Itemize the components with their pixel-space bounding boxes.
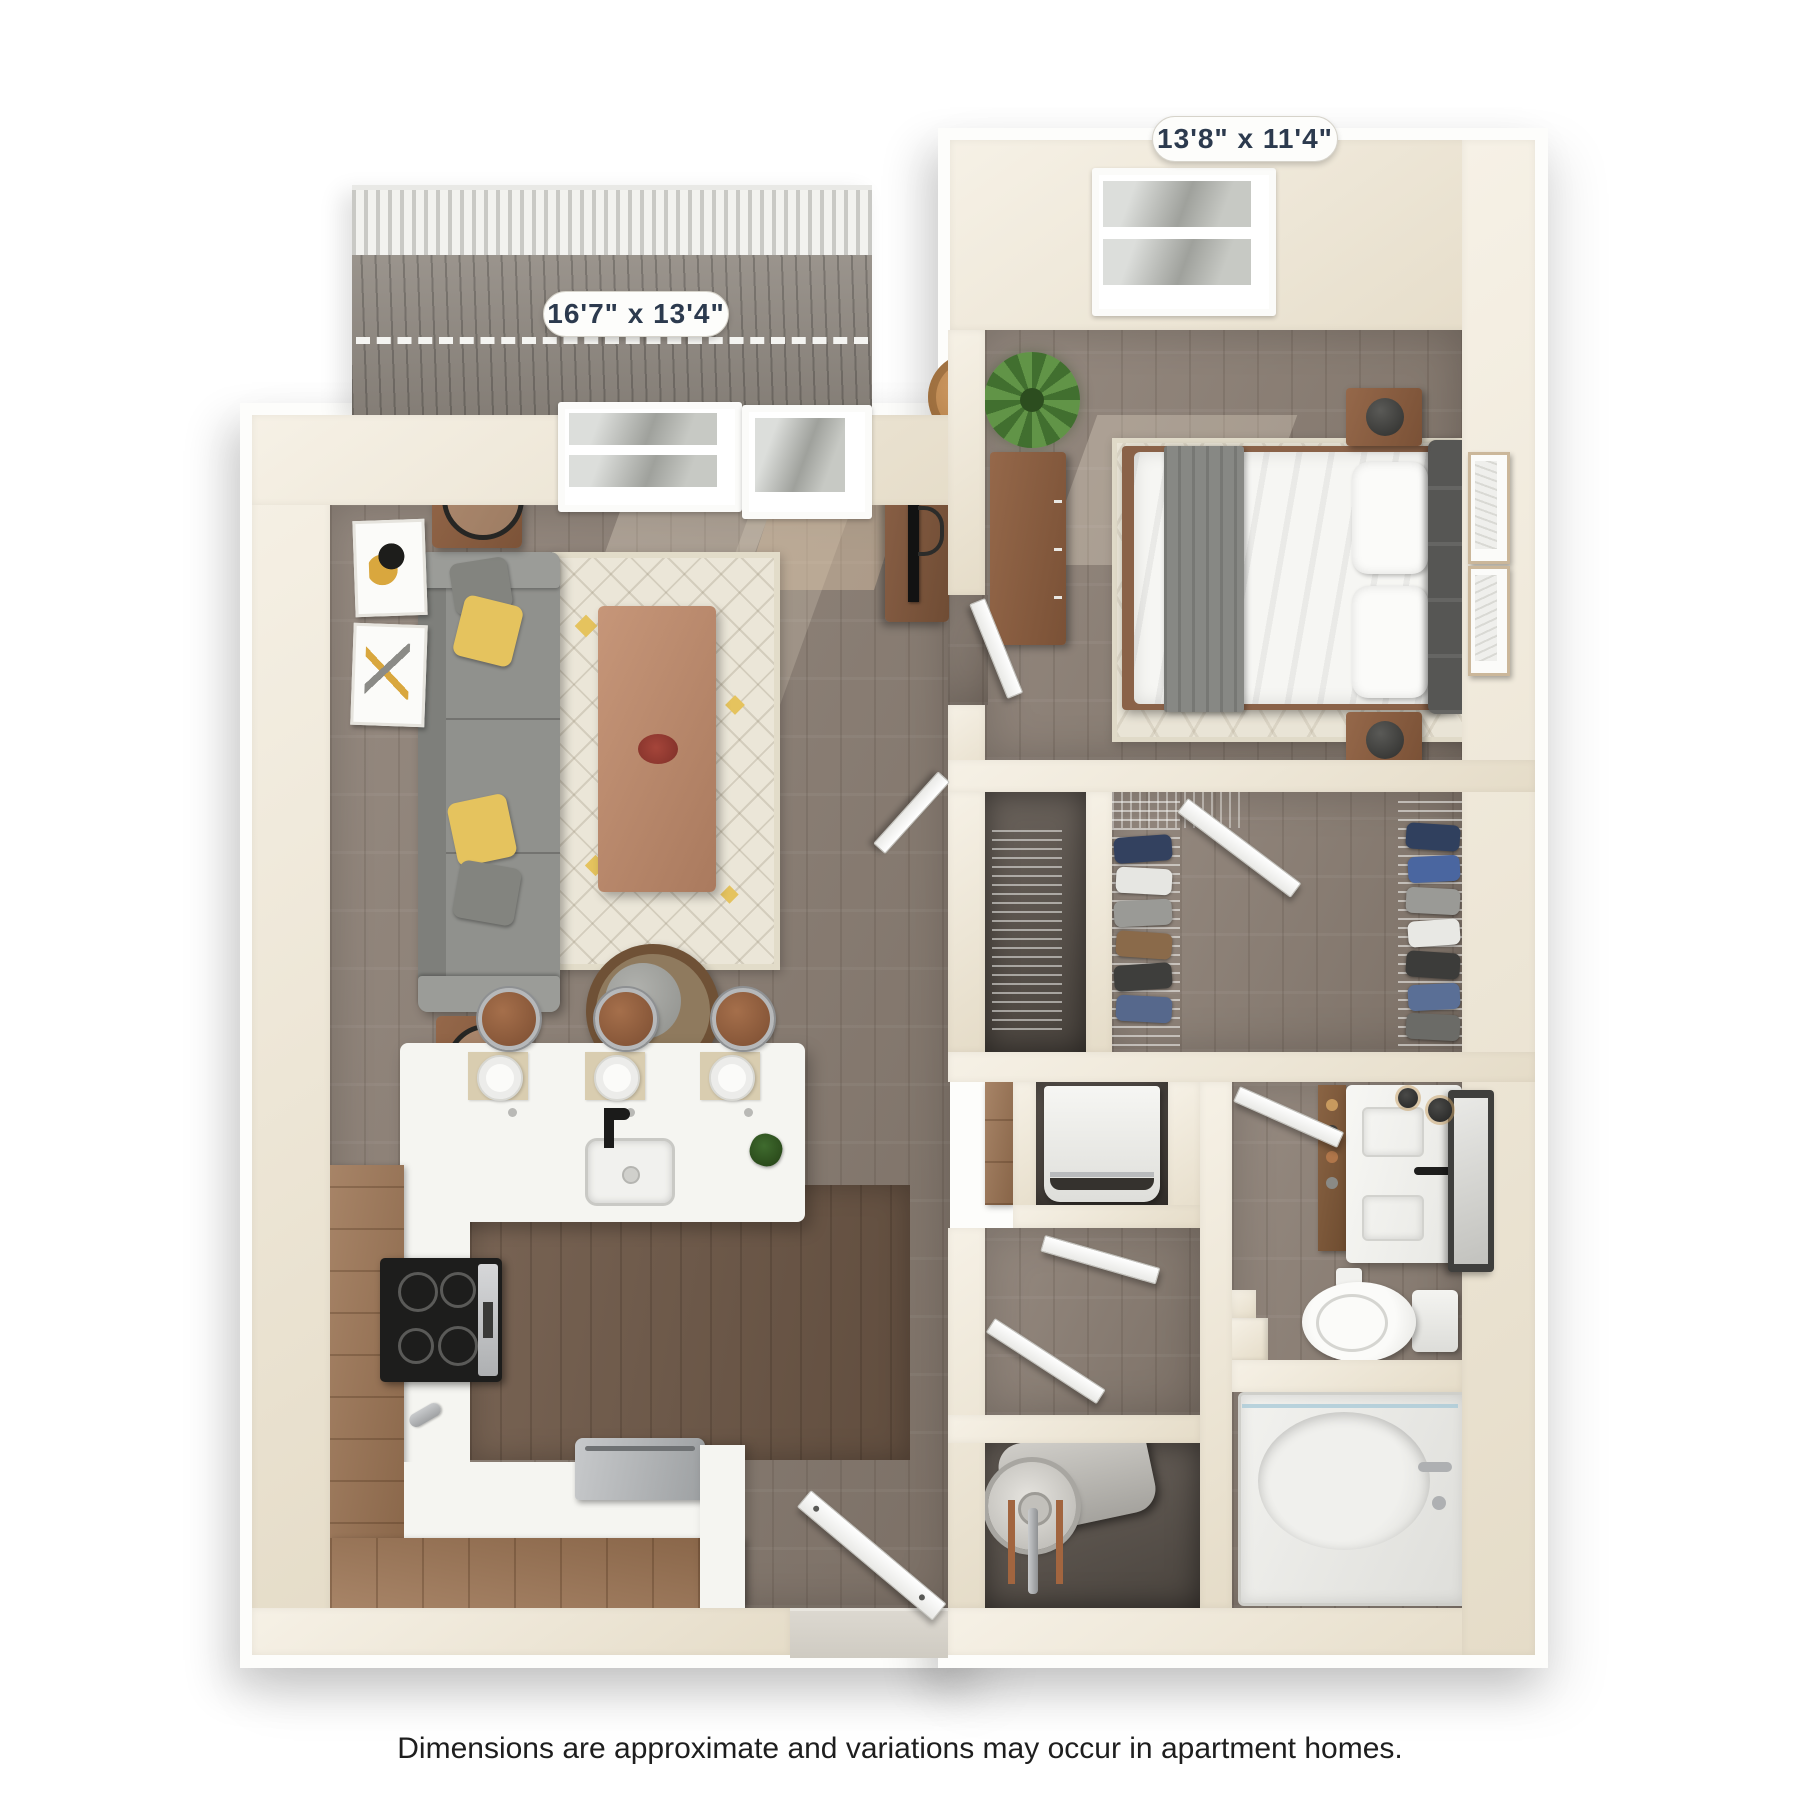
bedroom-window <box>1092 168 1276 316</box>
wall-laundry-lip <box>1013 1205 1200 1228</box>
kitchen-sink <box>585 1138 675 1206</box>
sofa-cushion-seam-1 <box>446 718 560 720</box>
bedroom-wall-frame-top <box>1468 452 1510 564</box>
dishwasher-front <box>575 1438 705 1500</box>
range-control-panel <box>478 1264 498 1376</box>
living-room-dimension-label: 16'7" x 13'4" <box>543 291 729 337</box>
bed-throw-blanket <box>1164 446 1244 712</box>
bathroom-step-2 <box>1232 1290 1256 1318</box>
clothes-right-6 <box>1407 983 1460 1012</box>
clothes-left-2 <box>1115 867 1172 896</box>
tub-glass-panel <box>1242 1404 1458 1408</box>
wall-right-outer <box>1462 140 1535 1655</box>
clothes-left-1 <box>1113 834 1173 864</box>
wall-art-bottom-graphic <box>364 642 410 700</box>
patio-door <box>742 405 872 519</box>
clothes-right-1 <box>1405 822 1461 852</box>
wall-bathroom-left <box>1200 1082 1232 1608</box>
rug-accent-diamond-1 <box>575 615 598 638</box>
patio-door-glass <box>755 418 845 492</box>
nightstand-lamp-bottom <box>1366 721 1404 759</box>
bed-headboard <box>1428 440 1462 714</box>
plate-3 <box>709 1055 755 1101</box>
bedroom-dimension-text: 13'8" x 11'4" <box>1157 123 1333 155</box>
vanity-basin-2 <box>1362 1195 1424 1241</box>
wall-bottom-outer-left <box>252 1608 790 1655</box>
water-heater-pipe-copper-2 <box>1056 1500 1063 1584</box>
wall-water-heater-top <box>948 1415 1200 1443</box>
vanity-side-shelf <box>1318 1085 1346 1251</box>
living-window-pane-bottom <box>569 455 717 487</box>
entry-threshold <box>790 1608 948 1658</box>
bedroom-dresser <box>990 452 1066 645</box>
bedroom-window-pane-bottom <box>1103 239 1251 285</box>
water-heater-pipe-copper-1 <box>1008 1500 1015 1584</box>
toilet-seat-ring <box>1316 1294 1388 1352</box>
bar-stool-2 <box>595 988 657 1050</box>
sofa-back <box>418 552 446 1012</box>
plant-center <box>1020 388 1044 412</box>
clothes-right-7 <box>1405 1013 1460 1042</box>
nightstand-top <box>1346 388 1422 446</box>
dresser-handle-1 <box>1054 500 1062 503</box>
entry-door-hinge-dot-2 <box>918 1593 926 1601</box>
plate-1 <box>477 1055 523 1101</box>
bedroom-wall-frame-bottom <box>1468 566 1510 676</box>
walkin-closet-shelf-top <box>1112 792 1242 828</box>
range-stove <box>380 1258 502 1382</box>
bathroom-mirror-glass <box>1454 1098 1488 1264</box>
wall-art-top-graphic <box>368 540 408 585</box>
toiletry-4 <box>1326 1177 1338 1189</box>
rug-accent-diamond-4 <box>720 885 738 903</box>
water-heater-pipe-chrome <box>1028 1508 1038 1594</box>
bar-stool-3 <box>712 988 774 1050</box>
laundry-side-shelf <box>985 1082 1013 1205</box>
bedroom-dimension-label: 13'8" x 11'4" <box>1152 116 1338 162</box>
nightstand-lamp-top <box>1366 398 1404 436</box>
wall-left-outer <box>252 415 330 1655</box>
wall-art-top <box>352 519 427 617</box>
living-window-pane-top <box>569 413 717 445</box>
clothes-left-4 <box>1115 930 1173 960</box>
entry-door-hinge-dot-1 <box>812 1504 820 1512</box>
bedroom-frame-top-art <box>1475 461 1497 549</box>
kitchen-faucet-spout <box>604 1108 630 1120</box>
dresser-handle-2 <box>1054 548 1062 551</box>
washer-door-gap <box>1050 1178 1154 1190</box>
bedroom-window-pane-top <box>1103 181 1251 227</box>
wall-bottom-outer-right <box>948 1608 1535 1655</box>
coffee-table <box>598 606 716 892</box>
mirror-sconce-1 <box>1428 1098 1452 1122</box>
bedroom-frame-bottom-art <box>1475 575 1497 661</box>
plant <box>984 352 1080 448</box>
kitchen-counter-end-cap <box>700 1445 745 1608</box>
bathroom-step-1 <box>1232 1318 1268 1360</box>
wall-closets-bottom <box>948 1052 1535 1082</box>
dresser-handle-3 <box>1054 596 1062 599</box>
clothes-left-6 <box>1115 995 1172 1024</box>
wall-hall-right <box>948 792 985 1052</box>
bathroom-ledge <box>1232 1360 1462 1392</box>
wall-art-bottom <box>350 623 428 728</box>
bar-stool-1 <box>478 988 540 1050</box>
burner-4 <box>438 1326 478 1366</box>
wall-bedroom-left-upper <box>948 330 985 595</box>
burner-3 <box>398 1328 434 1364</box>
living-room-window <box>558 402 742 512</box>
living-room-dimension-text: 16'7" x 13'4" <box>547 298 724 330</box>
burner-1 <box>398 1272 438 1312</box>
coffee-table-decor-dish <box>638 734 678 764</box>
toilet-tank <box>1412 1290 1458 1352</box>
clothes-right-3 <box>1405 887 1460 916</box>
gray-pillow-bottom <box>451 859 522 927</box>
tub-handle <box>1432 1496 1446 1510</box>
toilet-bowl <box>1302 1282 1416 1362</box>
washer-trim <box>1050 1172 1154 1177</box>
toiletry-1 <box>1326 1099 1338 1111</box>
kitchen-nook-floor <box>470 1185 910 1460</box>
clothes-right-4 <box>1407 918 1461 948</box>
washer <box>1044 1086 1160 1202</box>
kitchen-cabinets-bottom <box>330 1538 745 1608</box>
rug-accent-diamond-2 <box>725 695 745 715</box>
clothes-left-5 <box>1113 962 1173 992</box>
bed-pillow-bottom <box>1352 586 1428 698</box>
linen-closet-wire-shelves <box>992 830 1062 1030</box>
disclaimer-caption: Dimensions are approximate and variation… <box>0 1732 1800 1766</box>
bathroom-mirror <box>1448 1090 1494 1272</box>
island-knob-1 <box>508 1108 517 1117</box>
burner-2 <box>440 1272 476 1308</box>
vanity-basin-1 <box>1362 1107 1424 1157</box>
island-knob-3 <box>744 1108 753 1117</box>
sink-drain <box>622 1166 640 1184</box>
wall-bedroom-bottom <box>948 760 1535 792</box>
mirror-sconce-2 <box>1398 1088 1418 1108</box>
yellow-pillow-bottom <box>446 792 518 867</box>
balcony-edge-dashes <box>356 337 868 344</box>
bed-pillow-top <box>1352 462 1428 574</box>
wall-closet-divider <box>1086 792 1112 1052</box>
plate-2 <box>594 1055 640 1101</box>
balcony-railing <box>352 185 872 263</box>
tub-basin <box>1258 1412 1430 1550</box>
clothes-left-3 <box>1113 899 1172 928</box>
clothes-right-2 <box>1407 855 1460 884</box>
range-display <box>483 1302 493 1338</box>
dishwasher-handle <box>585 1446 695 1451</box>
clothes-right-5 <box>1405 950 1461 980</box>
floor-plan-scene: 16'7" x 13'4" 13'8" x 11'4" Dimensions a… <box>0 0 1800 1800</box>
toiletry-3 <box>1326 1151 1338 1163</box>
tub-faucet <box>1418 1462 1452 1472</box>
